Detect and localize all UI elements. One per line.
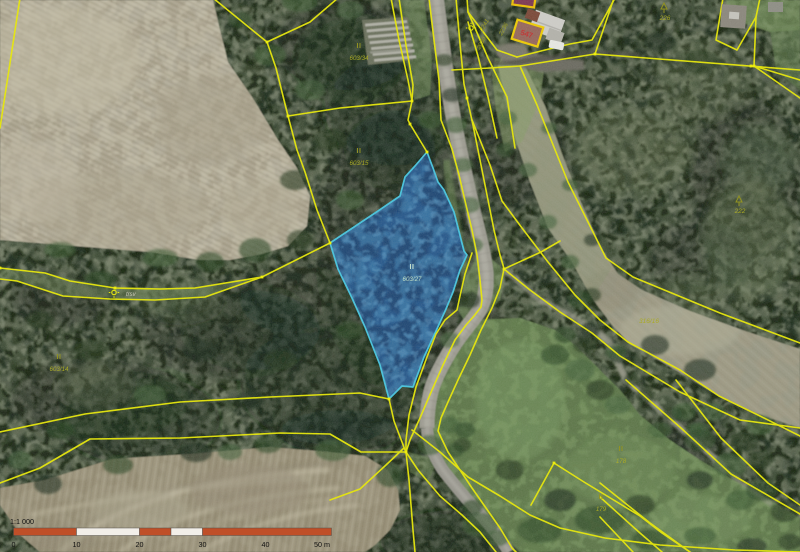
svg-text:40: 40 — [262, 540, 270, 549]
svg-text:1:1 000: 1:1 000 — [10, 517, 34, 526]
svg-text:10: 10 — [73, 540, 81, 549]
svg-text:30: 30 — [199, 540, 207, 549]
svg-text:0: 0 — [12, 540, 16, 549]
svg-text:20: 20 — [136, 540, 144, 549]
svg-text:50 m: 50 m — [314, 540, 330, 549]
